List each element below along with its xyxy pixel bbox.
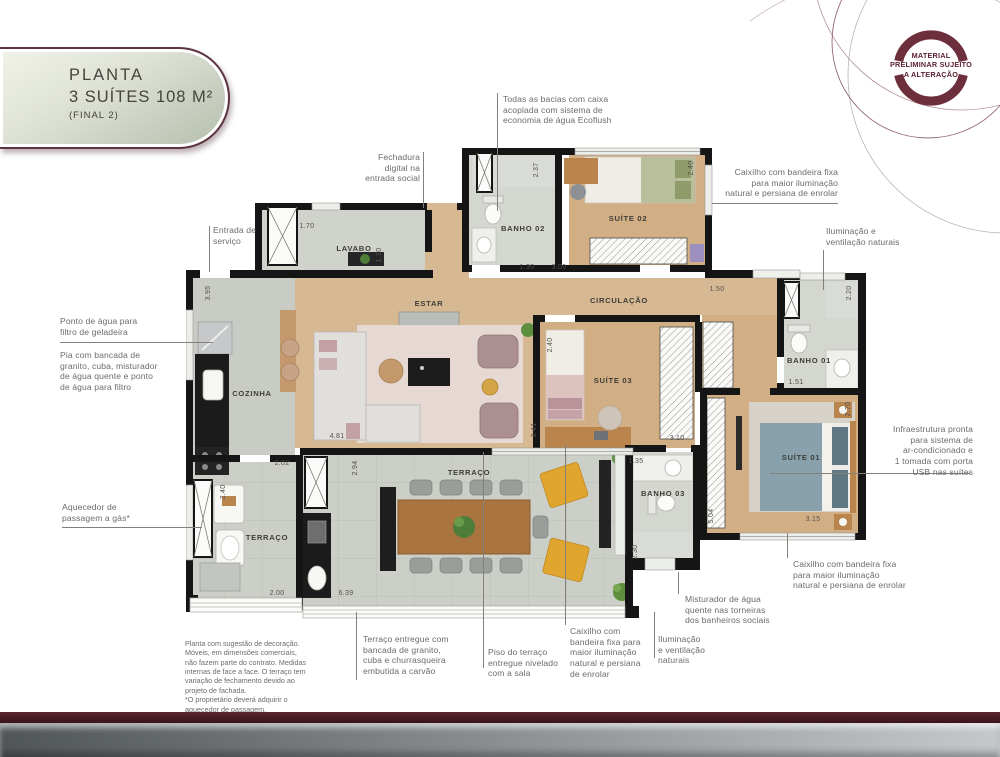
suite-02-desk (564, 158, 598, 184)
footer-maroon-bar (0, 712, 1000, 723)
toilet (485, 204, 501, 224)
dimension-banho03-altura: 2.30 (632, 545, 639, 560)
callout-fechadura-digital: Fechadura digital na entrada social (340, 152, 420, 184)
wardrobe (703, 322, 733, 388)
kitchen-sink (203, 370, 223, 400)
dimension-terraco-altura: 2.94 (352, 461, 359, 476)
disclaimer-text: Planta com sugestão de decoração. Móveis… (185, 639, 330, 714)
armchair (480, 403, 518, 438)
dimension-cozinha-largura: 2.02 (275, 460, 290, 467)
callout-iluminacao-right: Iluminação e ventilação naturais (826, 226, 926, 247)
dimension-suite03-largura: 3.10 (670, 435, 685, 442)
floor-plan-sheet: { "title": {"line1": "PLANTA", "line2": … (0, 0, 1000, 757)
dimension-lavabo-altura: 1.10 (376, 248, 383, 263)
dimension-suite02-altura: 2.40 (688, 161, 695, 176)
closet-hatch (305, 457, 327, 508)
room-label-estar: ESTAR (415, 299, 444, 308)
sink (665, 460, 681, 476)
dimension-banho02-altura: 2.37 (533, 163, 540, 178)
dimension-cozinha-altura: 3.95 (205, 286, 212, 301)
callout-iluminacao-bottom: Iluminação e ventilação naturais (658, 634, 728, 666)
room-label-banho-03: BANHO 03 (641, 489, 685, 498)
footer-silver-bar (0, 723, 1000, 757)
callout-caixilho-bottom-right: Caixilho com bandeira fixa para maior il… (793, 559, 923, 591)
heater-closet-hatch (194, 480, 212, 557)
dimension-banho01-largura: 1.51 (789, 379, 804, 386)
callout-caixilho-bottom-mid: Caixilho com bandeira fixa para maior il… (570, 626, 650, 679)
wardrobe (707, 398, 725, 528)
callout-entrada-servico: Entrada de serviço (213, 225, 283, 246)
plant (521, 323, 535, 337)
callout-caixilho-top-right: Caixilho com bandeira fixa para maior il… (700, 167, 838, 199)
callout-pia-bancada: Pia com bancada de granito, cuba, mistur… (60, 350, 180, 393)
shaft-hatch (784, 282, 799, 318)
wardrobe (590, 238, 687, 264)
room-label-suite-02: SUÍTE 02 (609, 214, 648, 223)
stamp-text: MATERIAL PRELIMINAR SUJEITO A ALTERAÇÃO (866, 51, 996, 79)
page-subtitle: 3 SUÍTES 108 M² (69, 88, 225, 107)
room-label-lavabo: LAVABO (336, 244, 371, 253)
leader-line (62, 527, 202, 528)
leader-line (565, 445, 566, 625)
dimension-estar-largura: 4.81 (330, 433, 345, 440)
shaft-hatch (477, 153, 492, 192)
leader-line (423, 152, 424, 208)
dimension-banho03-largura: 1.35 (629, 458, 644, 465)
dimension-terraco-servico-largura: 2.00 (270, 590, 285, 597)
side-table (379, 359, 403, 383)
leader-line (654, 612, 655, 658)
dimension-suite01-altura: 2.70 (845, 402, 852, 417)
preliminary-stamp: MATERIAL PRELIMINAR SUJEITO A ALTERAÇÃO (866, 20, 996, 120)
room-label-suite-03: SUÍTE 03 (594, 376, 633, 385)
room-label-banho-02: BANHO 02 (501, 224, 545, 233)
dimension-banho01-altura: 2.20 (846, 286, 853, 301)
leader-line (356, 612, 357, 680)
dimension-terraco-servico-altura: 2.40 (220, 485, 227, 500)
room-label-banho-01: BANHO 01 (787, 356, 831, 365)
callout-infraestrutura-ar: Infraestrutura pronta para sistema de ar… (833, 424, 973, 477)
leader-line (60, 342, 213, 343)
leader-line (483, 452, 484, 668)
toilet (791, 333, 807, 353)
dimension-circulacao: 1.50 (710, 286, 725, 293)
dimension-estar-altura: 3.41 (531, 423, 538, 438)
wardrobe (660, 327, 693, 439)
callout-aquecedor: Aquecedor de passagem a gás* (62, 502, 162, 523)
title-badge: PLANTA 3 SUÍTES 108 M² (FINAL 2) (0, 47, 230, 149)
callout-ponto-agua: Ponto de água para filtro de geladeira (60, 316, 170, 337)
dimension-suite01-largura: 3.15 (806, 516, 821, 523)
leader-line (209, 226, 210, 272)
callout-misturador: Misturador de água quente nas torneiras … (685, 594, 795, 626)
armchair (478, 335, 518, 368)
leader-line (678, 572, 679, 594)
page-title-final: (FINAL 2) (69, 110, 225, 121)
room-label-circulacao: CIRCULAÇÃO (590, 296, 648, 305)
callout-bacias-ecoflush: Todas as bacias com caixa acoplada com s… (503, 94, 643, 126)
leader-line (712, 203, 838, 204)
coffee-table (408, 358, 450, 386)
leader-line (823, 250, 824, 290)
dimension-suite03-altura: 2.40 (547, 338, 554, 353)
dimension-lavabo-largura: 1.70 (300, 223, 315, 230)
callout-piso-terraco: Piso do terraço entregue nivelado com a … (488, 647, 578, 679)
room-label-terraco-servico: TERRAÇO (246, 533, 288, 542)
dimension-corredor-altura: 5.04 (708, 509, 715, 524)
room-label-cozinha: COZINHA (232, 389, 272, 398)
leader-line (787, 533, 788, 558)
bench (380, 487, 396, 571)
leader-line (497, 93, 498, 211)
floor-plan: LAVABO BANHO 02 SUÍTE 02 ESTAR CIRCULAÇÃ… (186, 140, 866, 620)
dimension-suite02-largura: 3.00 (552, 264, 567, 271)
dimension-banho02-largura: 1.30 (520, 264, 535, 271)
page-title: PLANTA (69, 66, 225, 85)
sink (477, 237, 491, 253)
suite-03-desk (545, 427, 631, 451)
room-label-suite-01: SUÍTE 01 (782, 453, 821, 462)
sink (834, 359, 850, 377)
dimension-terraco-largura: 6.39 (339, 590, 354, 597)
callout-terraco-entregue: Terraço entregue com bancada de granito,… (363, 634, 473, 677)
